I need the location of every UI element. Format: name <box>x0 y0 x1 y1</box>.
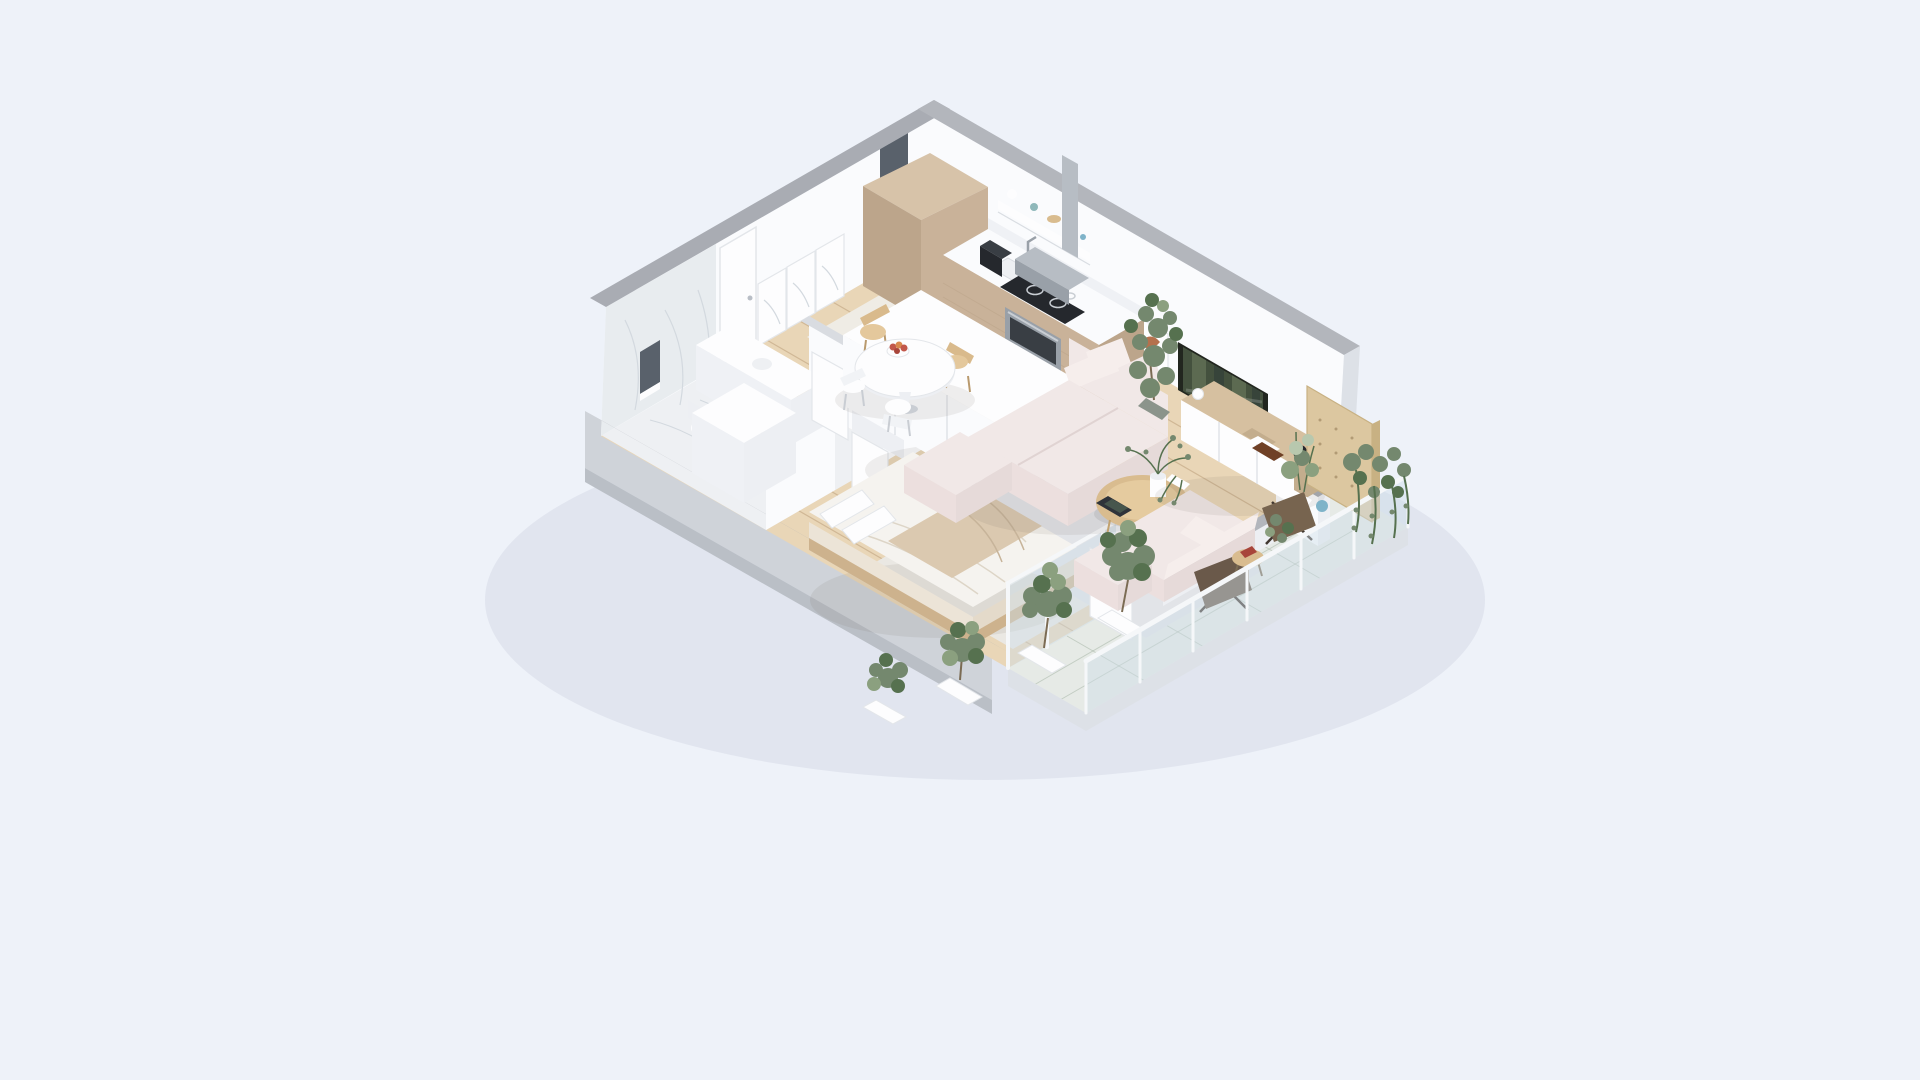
sink-basin <box>752 358 772 370</box>
hood-chimney <box>1062 155 1078 258</box>
door-knob <box>748 296 753 301</box>
blue-vase <box>1316 500 1328 512</box>
sphere-lamp <box>1193 389 1204 400</box>
shelf-jar <box>1007 189 1017 199</box>
shelf-bottle <box>1080 234 1086 240</box>
shelf-cup <box>1030 203 1038 211</box>
shelf-plate <box>1047 215 1061 223</box>
screenshot-canvas <box>0 0 1920 1080</box>
isometric-apartment-render <box>0 0 1920 1080</box>
candle <box>909 372 914 381</box>
